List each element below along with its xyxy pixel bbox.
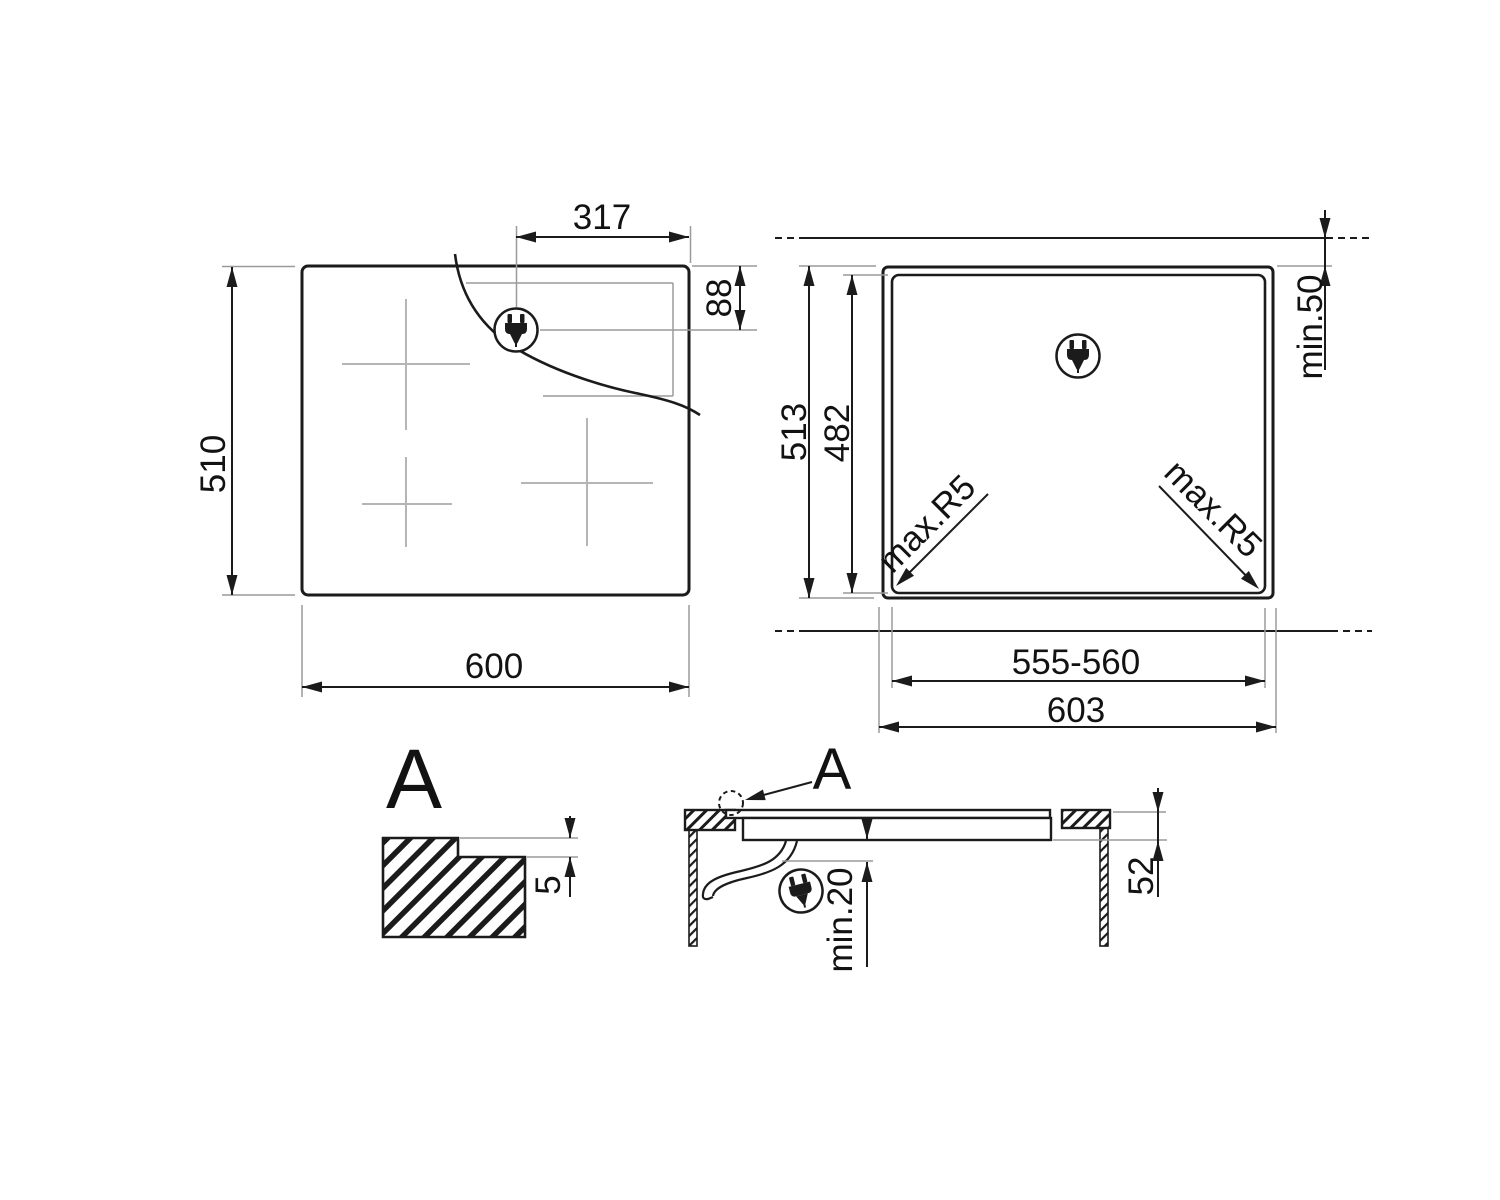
dim-label-317: 317 — [573, 198, 631, 237]
detail-a-view: A 5 — [383, 732, 578, 937]
hob-outline — [302, 266, 689, 595]
cooking-zone-cross-1 — [342, 299, 470, 430]
break-curve — [455, 254, 700, 415]
dim-label-510: 510 — [194, 435, 233, 493]
dim-outer-height-513: 513 — [775, 266, 815, 598]
cutout-outer-rect — [883, 267, 1273, 598]
dim-width-600: 600 — [302, 647, 689, 693]
dim-label-603: 603 — [1047, 691, 1105, 730]
section-view: A min.20 52 — [685, 737, 1167, 973]
installation-diagram: 317 88 510 600 — [0, 0, 1500, 1200]
cooking-zone-cross-3 — [521, 418, 653, 546]
dim-label-482: 482 — [818, 404, 857, 462]
dim-height-510: 510 — [194, 267, 238, 595]
cooking-zone-cross-2 — [362, 457, 452, 547]
worktop-block-right — [1062, 810, 1110, 828]
dim-label-min20: min.20 — [821, 867, 860, 972]
dim-offset-88: 88 — [700, 266, 746, 330]
dim-depth-52: 52 — [1122, 788, 1164, 897]
dim-clearance-min20: min.20 — [821, 819, 873, 973]
dim-label-600: 600 — [465, 647, 523, 686]
cabinet-wall-right — [1100, 828, 1108, 946]
detail-a-title: A — [386, 732, 442, 826]
hob-body — [743, 818, 1051, 840]
cutout-inner-rect — [892, 275, 1265, 593]
dim-label-min50: min.50 — [1291, 274, 1330, 379]
radius-callout-left: max.R5 — [870, 467, 988, 586]
power-plug-icon — [495, 309, 538, 352]
dim-cutout-height-482: 482 — [818, 275, 858, 593]
power-plug-icon — [1057, 335, 1100, 378]
dim-cutout-width-555-560: 555-560 — [892, 643, 1265, 687]
hob-top-view: 317 88 510 600 — [194, 198, 757, 697]
hob-glass-plate — [726, 810, 1050, 818]
radius-label-left: max.R5 — [870, 467, 983, 580]
dim-width-317: 317 — [516, 198, 689, 243]
detail-callout-arrow — [745, 782, 812, 800]
installation-diagram-page: 317 88 510 600 — [0, 0, 1500, 1200]
dim-label-88: 88 — [700, 279, 739, 318]
worktop-cutout-view: 513 482 min.50 max.R5 max.R5 — [775, 210, 1372, 733]
radius-label-right: max.R5 — [1157, 452, 1270, 565]
dim-label-555-560: 555-560 — [1012, 643, 1140, 682]
dim-label-5: 5 — [529, 875, 568, 894]
dim-outer-width-603: 603 — [879, 691, 1276, 733]
section-a-marker: A — [813, 737, 852, 802]
dim-label-513: 513 — [775, 403, 814, 461]
detail-block — [383, 838, 525, 937]
cabinet-wall-left — [689, 830, 697, 946]
radius-callout-right: max.R5 — [1157, 452, 1270, 589]
power-plug-icon — [775, 865, 827, 917]
dim-clearance-min50: min.50 — [1291, 210, 1331, 380]
dim-label-52: 52 — [1122, 857, 1161, 896]
